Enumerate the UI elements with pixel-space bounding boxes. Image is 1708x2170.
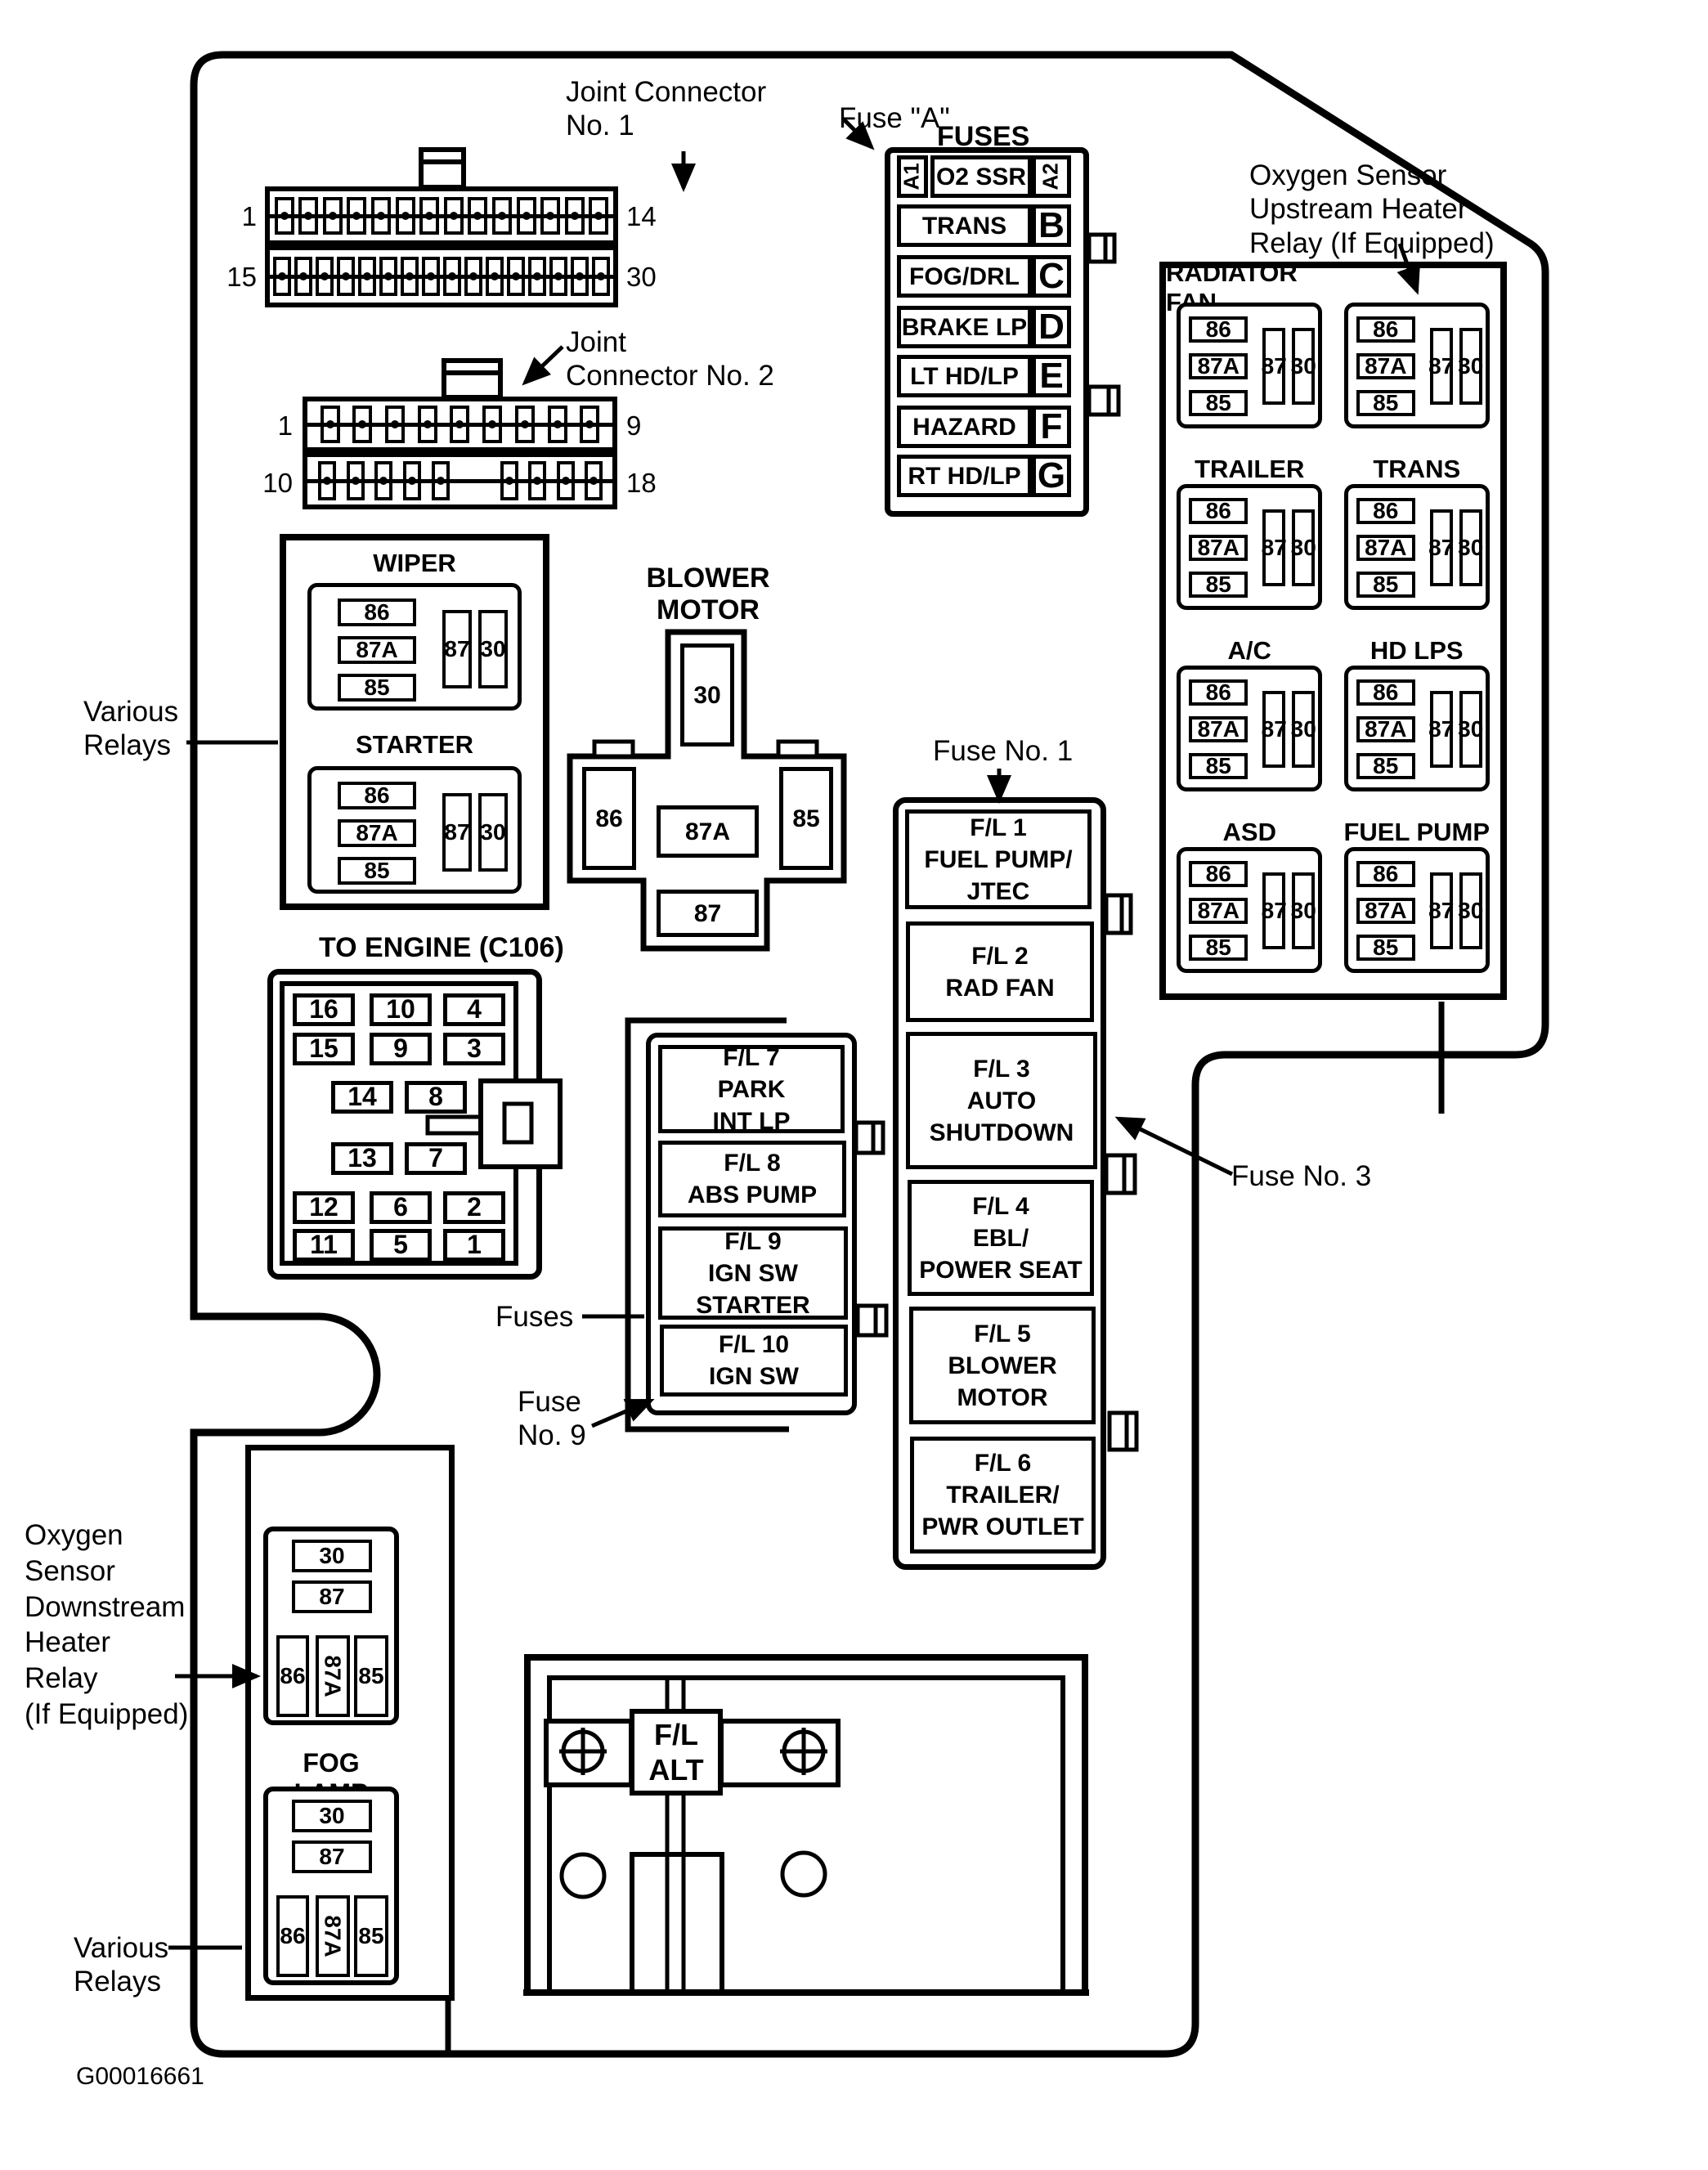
relay-title: STARTER bbox=[356, 730, 473, 760]
terminal-85: 85 bbox=[1189, 935, 1248, 961]
pin-dot bbox=[448, 272, 456, 280]
pin-dot bbox=[450, 212, 458, 220]
terminal-85: 85 bbox=[1189, 572, 1248, 598]
fl-10-cell: F/L 10 IGN SW bbox=[660, 1325, 848, 1397]
connector-pin bbox=[517, 197, 536, 235]
terminal-30: 30 bbox=[292, 1800, 372, 1832]
fuse-cell: LT HD/LP bbox=[897, 355, 1032, 397]
fuse-cell: O2 SSR bbox=[930, 155, 1032, 198]
engine-pin: 6 bbox=[370, 1191, 432, 1224]
engine-pin: 4 bbox=[443, 993, 505, 1026]
fuse-letter: E bbox=[1032, 355, 1071, 397]
relay-block: 86 87A 85 87 30 bbox=[1177, 303, 1322, 428]
terminal-85: 85 bbox=[354, 1895, 388, 1977]
terminal-87a: 87A bbox=[1356, 898, 1415, 924]
terminal-87a: 87A bbox=[338, 636, 416, 664]
fl-3-cell: F/L 3 AUTO SHUTDOWN bbox=[906, 1032, 1097, 1169]
fuse-column-box: A1 O2 SSR A2 TRANS B FOG/DRL C BRAKE LP … bbox=[885, 147, 1089, 517]
connector-pin bbox=[507, 257, 525, 296]
starter-relay: 86 87A 85 87 30 bbox=[307, 766, 522, 894]
connector-pin bbox=[358, 257, 376, 296]
terminal-87: 87 bbox=[1430, 328, 1453, 405]
terminal-86: 86 bbox=[1356, 498, 1415, 524]
connector-pin bbox=[486, 257, 504, 296]
connector-pin bbox=[275, 197, 294, 235]
terminal-87: 87 bbox=[1262, 328, 1285, 405]
blower-terminal-85: 85 bbox=[779, 767, 833, 870]
terminal-86: 86 bbox=[1356, 861, 1415, 887]
pin-label: 14 bbox=[626, 201, 657, 232]
connector-pin bbox=[385, 406, 405, 443]
relay-block: 86 87A 85 87 30 bbox=[1344, 484, 1490, 610]
label-fuse-a: Fuse "A" bbox=[839, 101, 950, 135]
connector-pin bbox=[540, 197, 560, 235]
relay-cell: TRANS 86 87A 85 87 30 bbox=[1334, 455, 1501, 636]
connector-pin bbox=[347, 461, 365, 500]
relay-title: TRANS bbox=[1373, 455, 1460, 484]
fuse-letter: G bbox=[1032, 455, 1071, 497]
relay-cell: RADIATOR FAN 86 87A 85 87 30 bbox=[1166, 273, 1334, 455]
label-fuse-no-1: Fuse No. 1 bbox=[933, 734, 1073, 768]
pin-dot bbox=[522, 212, 531, 220]
pin-dot bbox=[391, 420, 399, 428]
pin-dot bbox=[278, 272, 286, 280]
connector-pin bbox=[318, 461, 336, 500]
relay-title: TRAILER bbox=[1195, 455, 1304, 484]
terminal-86: 86 bbox=[276, 1635, 309, 1717]
fuse-cell: RT HD/LP bbox=[897, 455, 1032, 497]
pin-dot bbox=[408, 477, 416, 485]
blower-terminal-30: 30 bbox=[680, 643, 734, 746]
pin-dot bbox=[363, 272, 371, 280]
pin-dot bbox=[576, 272, 584, 280]
terminal-86: 86 bbox=[1189, 861, 1248, 887]
terminal-30: 30 bbox=[478, 610, 508, 688]
pin-dot bbox=[488, 420, 496, 428]
terminal-87: 87 bbox=[1262, 691, 1285, 768]
fuse-letter: C bbox=[1032, 255, 1071, 298]
engine-pin: 1 bbox=[443, 1229, 505, 1262]
pin-dot bbox=[304, 212, 312, 220]
fuse-cell: HAZARD bbox=[897, 406, 1032, 448]
engine-pin: 10 bbox=[370, 993, 432, 1026]
connector-pin bbox=[374, 461, 392, 500]
connector-pin bbox=[432, 461, 450, 500]
relay-cell: HD LPS 86 87A 85 87 30 bbox=[1334, 636, 1501, 818]
connector-pin bbox=[371, 197, 391, 235]
terminal-87a: 87A bbox=[338, 819, 416, 847]
terminal-87: 87 bbox=[442, 610, 472, 688]
pin-dot bbox=[546, 212, 554, 220]
pin-dot bbox=[585, 420, 594, 428]
connector-pin bbox=[571, 257, 589, 296]
fuse-letter: D bbox=[1032, 306, 1071, 348]
connector-pin bbox=[443, 257, 461, 296]
terminal-85: 85 bbox=[338, 857, 416, 885]
relay-cell: TRAILER 86 87A 85 87 30 bbox=[1166, 455, 1334, 636]
connector-pin bbox=[352, 406, 372, 443]
label-various-relays-bottom: Various Relays bbox=[74, 1931, 168, 1999]
terminal-87a: 87A bbox=[1356, 716, 1415, 742]
pin-dot bbox=[455, 420, 464, 428]
blower-terminal-86: 86 bbox=[582, 767, 636, 870]
terminal-86: 86 bbox=[1356, 679, 1415, 706]
terminal-30: 30 bbox=[1292, 872, 1315, 949]
pin-group bbox=[307, 457, 460, 504]
pin-dot bbox=[424, 420, 432, 428]
fl-6-cell: F/L 6 TRAILER/ PWR OUTLET bbox=[910, 1437, 1096, 1554]
engine-pin: 2 bbox=[443, 1191, 505, 1224]
pin-dot bbox=[533, 477, 541, 485]
pin-dot bbox=[597, 272, 605, 280]
terminal-87a: 87A bbox=[1189, 716, 1248, 742]
connector-pin bbox=[585, 461, 603, 500]
pin-dot bbox=[498, 212, 506, 220]
label-fuse-no-3: Fuse No. 3 bbox=[1231, 1159, 1371, 1193]
terminal-30: 30 bbox=[478, 793, 508, 872]
pin-label: 30 bbox=[626, 262, 657, 293]
terminal-85: 85 bbox=[1356, 390, 1415, 416]
engine-pin: 14 bbox=[331, 1081, 393, 1114]
pin-group bbox=[491, 457, 612, 504]
label-fuses: Fuses bbox=[495, 1300, 573, 1334]
pin-dot bbox=[491, 272, 499, 280]
pin-dot bbox=[321, 272, 329, 280]
pin-dot bbox=[352, 212, 361, 220]
engine-pin: 16 bbox=[293, 993, 355, 1026]
pin-dot bbox=[379, 477, 388, 485]
relay-title: ASD bbox=[1223, 818, 1276, 847]
relay-cell: FUEL PUMP 86 87A 85 87 30 bbox=[1334, 818, 1501, 999]
pin-dot bbox=[521, 420, 529, 428]
terminal-30: 30 bbox=[1459, 509, 1482, 586]
connector-pin bbox=[403, 461, 421, 500]
fl-alt-label: F/L ALT bbox=[630, 1709, 723, 1796]
engine-pin: 11 bbox=[293, 1229, 355, 1262]
connector-pin bbox=[273, 257, 291, 296]
connector-pin bbox=[500, 461, 518, 500]
pin-label: 1 bbox=[221, 201, 257, 232]
terminal-30: 30 bbox=[1459, 328, 1482, 405]
pin-dot bbox=[299, 272, 307, 280]
pin-dot bbox=[425, 212, 433, 220]
fuse-a2-cell: A2 bbox=[1032, 155, 1071, 198]
engine-pin: 5 bbox=[370, 1229, 432, 1262]
pin-dot bbox=[473, 212, 482, 220]
relay-cell: 86 87A 85 87 30 bbox=[1334, 273, 1501, 455]
fuse-letter: B bbox=[1032, 204, 1071, 247]
terminal-86: 86 bbox=[1189, 498, 1248, 524]
pin-dot bbox=[533, 272, 541, 280]
blower-terminal-87a: 87A bbox=[657, 805, 759, 858]
various-relays-box: WIPER 86 87A 85 87 30 STARTER 86 87A 85 … bbox=[280, 534, 549, 910]
connector-pin bbox=[589, 197, 608, 235]
pin-dot bbox=[427, 272, 435, 280]
pin-label: 10 bbox=[245, 468, 293, 499]
pin-dot bbox=[437, 477, 445, 485]
terminal-87a: 87A bbox=[1356, 535, 1415, 561]
relay-title: HD LPS bbox=[1370, 636, 1464, 666]
terminal-87: 87 bbox=[1262, 872, 1285, 949]
connector-pin bbox=[294, 257, 312, 296]
joint-connector-2-row-2 bbox=[303, 452, 617, 509]
relay-title: A/C bbox=[1228, 636, 1271, 666]
terminal-30: 30 bbox=[292, 1540, 372, 1572]
connector-pin bbox=[337, 257, 355, 296]
pin-label: 1 bbox=[257, 410, 293, 442]
relay-panel: RADIATOR FAN 86 87A 85 87 30 86 87A 85 8… bbox=[1159, 262, 1507, 1000]
pin-dot bbox=[329, 212, 337, 220]
label-fuse-no-9: Fuse No. 9 bbox=[518, 1385, 586, 1453]
pin-dot bbox=[401, 212, 410, 220]
connector-pin bbox=[464, 257, 482, 296]
connector-pin bbox=[379, 257, 397, 296]
connector-pin bbox=[528, 257, 546, 296]
fuse-box-diagram: Joint Connector No. 1 Fuse "A" FUSES Joi… bbox=[0, 0, 1708, 2170]
engine-pin: 7 bbox=[405, 1142, 467, 1175]
label-various-relays-left: Various Relays bbox=[83, 695, 178, 763]
terminal-87: 87 bbox=[1430, 872, 1453, 949]
blower-motor-title: BLOWER MOTOR bbox=[636, 563, 780, 626]
engine-pin: 15 bbox=[293, 1033, 355, 1065]
label-o2-upstream-relay: Oxygen Sensor Upstream Heater Relay (If … bbox=[1249, 159, 1495, 260]
pin-label: 9 bbox=[626, 410, 641, 442]
fuse-cell: FOG/DRL bbox=[897, 255, 1032, 298]
connector-pin bbox=[321, 406, 340, 443]
hole-icon bbox=[562, 1854, 604, 1897]
fuse-a1-cell: A1 bbox=[897, 155, 928, 198]
terminal-87a: 87A bbox=[1189, 535, 1248, 561]
pin-dot bbox=[406, 272, 414, 280]
terminal-87: 87 bbox=[442, 793, 472, 872]
terminal-85: 85 bbox=[354, 1635, 388, 1717]
terminal-87a: 87A bbox=[1356, 353, 1415, 379]
terminal-87: 87 bbox=[1262, 509, 1285, 586]
fl-2-cell: F/L 2 RAD FAN bbox=[906, 921, 1094, 1022]
connector-pin bbox=[515, 406, 535, 443]
pin-dot bbox=[384, 272, 392, 280]
connector-pin bbox=[549, 257, 567, 296]
connector-pin bbox=[450, 406, 469, 443]
relay-cell: ASD 86 87A 85 87 30 bbox=[1166, 818, 1334, 999]
fuse-cell: BRAKE LP bbox=[897, 306, 1032, 348]
pin-label: 15 bbox=[211, 262, 257, 293]
relay-block: 86 87A 85 87 30 bbox=[1344, 847, 1490, 973]
pin-dot bbox=[505, 477, 513, 485]
pin-dot bbox=[352, 477, 360, 485]
fl-1-cell: F/L 1 FUEL PUMP/ JTEC bbox=[905, 809, 1092, 909]
fl-4-cell: F/L 4 EBL/ POWER SEAT bbox=[908, 1180, 1094, 1296]
relay-cell: A/C 86 87A 85 87 30 bbox=[1166, 636, 1334, 818]
engine-pin: 12 bbox=[293, 1191, 355, 1224]
o2-downstream-relay-block: 30 87 86 87A 85 bbox=[263, 1527, 399, 1725]
connector-pin bbox=[592, 257, 610, 296]
blower-terminal-87: 87 bbox=[657, 890, 759, 937]
fuse-cell: TRANS bbox=[897, 204, 1032, 247]
connector-pin bbox=[396, 197, 415, 235]
pin-dot bbox=[358, 420, 366, 428]
fl-alt-assembly bbox=[523, 1657, 1089, 1993]
terminal-87: 87 bbox=[1430, 691, 1453, 768]
connector-pin bbox=[444, 197, 464, 235]
connector-pin bbox=[468, 197, 487, 235]
pin-dot bbox=[342, 272, 350, 280]
terminal-30: 30 bbox=[1292, 328, 1315, 405]
terminal-86: 86 bbox=[338, 599, 416, 626]
engine-pin: 9 bbox=[370, 1033, 432, 1065]
terminal-87a: 87A bbox=[316, 1895, 350, 1977]
connector-pin bbox=[418, 406, 437, 443]
pin-dot bbox=[571, 212, 579, 220]
relay-block: 86 87A 85 87 30 bbox=[1177, 666, 1322, 791]
terminal-85: 85 bbox=[1189, 753, 1248, 779]
terminal-87a: 87A bbox=[316, 1635, 350, 1717]
connector-pin bbox=[316, 257, 334, 296]
terminal-85: 85 bbox=[338, 674, 416, 702]
terminal-86: 86 bbox=[1189, 316, 1248, 343]
joint-connector-1-row-1 bbox=[265, 186, 618, 245]
connector-pin bbox=[557, 461, 575, 500]
fuse-letter: F bbox=[1032, 406, 1071, 448]
joint-connector-2-row-1 bbox=[303, 397, 617, 452]
pin-dot bbox=[469, 272, 477, 280]
terminal-86: 86 bbox=[276, 1895, 309, 1977]
terminal-85: 85 bbox=[1356, 572, 1415, 598]
terminal-85: 85 bbox=[1356, 935, 1415, 961]
terminal-85: 85 bbox=[1356, 753, 1415, 779]
relay-block: 86 87A 85 87 30 bbox=[1177, 484, 1322, 610]
hole-icon bbox=[782, 1853, 825, 1895]
relay-title: RADIATOR FAN bbox=[1166, 273, 1334, 303]
relay-title: FUEL PUMP bbox=[1343, 818, 1490, 847]
pin-dot bbox=[323, 477, 331, 485]
fl-8-cell: F/L 8 ABS PUMP bbox=[658, 1141, 846, 1217]
relay-block: 86 87A 85 87 30 bbox=[1344, 303, 1490, 428]
terminal-30: 30 bbox=[1459, 691, 1482, 768]
terminal-87: 87 bbox=[292, 1840, 372, 1873]
fl-5-cell: F/L 5 BLOWER MOTOR bbox=[909, 1307, 1096, 1424]
connector-pin bbox=[548, 406, 567, 443]
pin-dot bbox=[562, 477, 570, 485]
connector-pin bbox=[298, 197, 318, 235]
fl-7-cell: F/L 7 PARK INT LP bbox=[658, 1045, 845, 1133]
joint-connector-1-row-2 bbox=[265, 245, 618, 307]
terminal-87a: 87A bbox=[1189, 898, 1248, 924]
connector-pin bbox=[419, 197, 439, 235]
relay-title: WIPER bbox=[373, 549, 456, 578]
terminal-30: 30 bbox=[1459, 872, 1482, 949]
engine-pin: 8 bbox=[405, 1081, 467, 1114]
terminal-87: 87 bbox=[292, 1580, 372, 1613]
pin-dot bbox=[512, 272, 520, 280]
fog-lamp-relay-block: 30 87 86 87A 85 bbox=[263, 1787, 399, 1985]
terminal-86: 86 bbox=[1356, 316, 1415, 343]
connector-pin bbox=[492, 197, 512, 235]
fl-9-cell: F/L 9 IGN SW STARTER bbox=[658, 1226, 848, 1320]
pin-dot bbox=[280, 212, 289, 220]
pin-dot bbox=[377, 212, 385, 220]
connector-pin bbox=[528, 461, 546, 500]
figure-code: G00016661 bbox=[76, 2062, 204, 2091]
engine-pin: 3 bbox=[443, 1033, 505, 1065]
label-joint-connector-2: Joint Connector No. 2 bbox=[566, 325, 774, 393]
engine-connector-title: TO ENGINE (C106) bbox=[319, 932, 564, 964]
connector-pin bbox=[347, 197, 366, 235]
terminal-30: 30 bbox=[1292, 509, 1315, 586]
relay-block: 86 87A 85 87 30 bbox=[1344, 666, 1490, 791]
terminal-86: 86 bbox=[338, 782, 416, 809]
pin-dot bbox=[594, 212, 603, 220]
label-joint-connector-1: Joint Connector No. 1 bbox=[566, 75, 766, 143]
engine-pin: 13 bbox=[331, 1142, 393, 1175]
terminal-85: 85 bbox=[1189, 390, 1248, 416]
connector-pin bbox=[323, 197, 343, 235]
pin-dot bbox=[326, 420, 334, 428]
terminal-86: 86 bbox=[1189, 679, 1248, 706]
pin-label: 18 bbox=[626, 468, 657, 499]
relay-block: 86 87A 85 87 30 bbox=[1177, 847, 1322, 973]
connector-pin bbox=[422, 257, 440, 296]
connector-pin bbox=[565, 197, 585, 235]
connector-pin bbox=[401, 257, 419, 296]
terminal-30: 30 bbox=[1292, 691, 1315, 768]
terminal-87a: 87A bbox=[1189, 353, 1248, 379]
pin-dot bbox=[554, 420, 562, 428]
pin-dot bbox=[590, 477, 598, 485]
connector-pin bbox=[580, 406, 599, 443]
pin-dot bbox=[554, 272, 563, 280]
terminal-87: 87 bbox=[1430, 509, 1453, 586]
connector-pin bbox=[482, 406, 502, 443]
wiper-relay: 86 87A 85 87 30 bbox=[307, 583, 522, 711]
label-o2-downstream-relay: Oxygen Sensor Downstream Heater Relay (I… bbox=[25, 1518, 188, 1733]
